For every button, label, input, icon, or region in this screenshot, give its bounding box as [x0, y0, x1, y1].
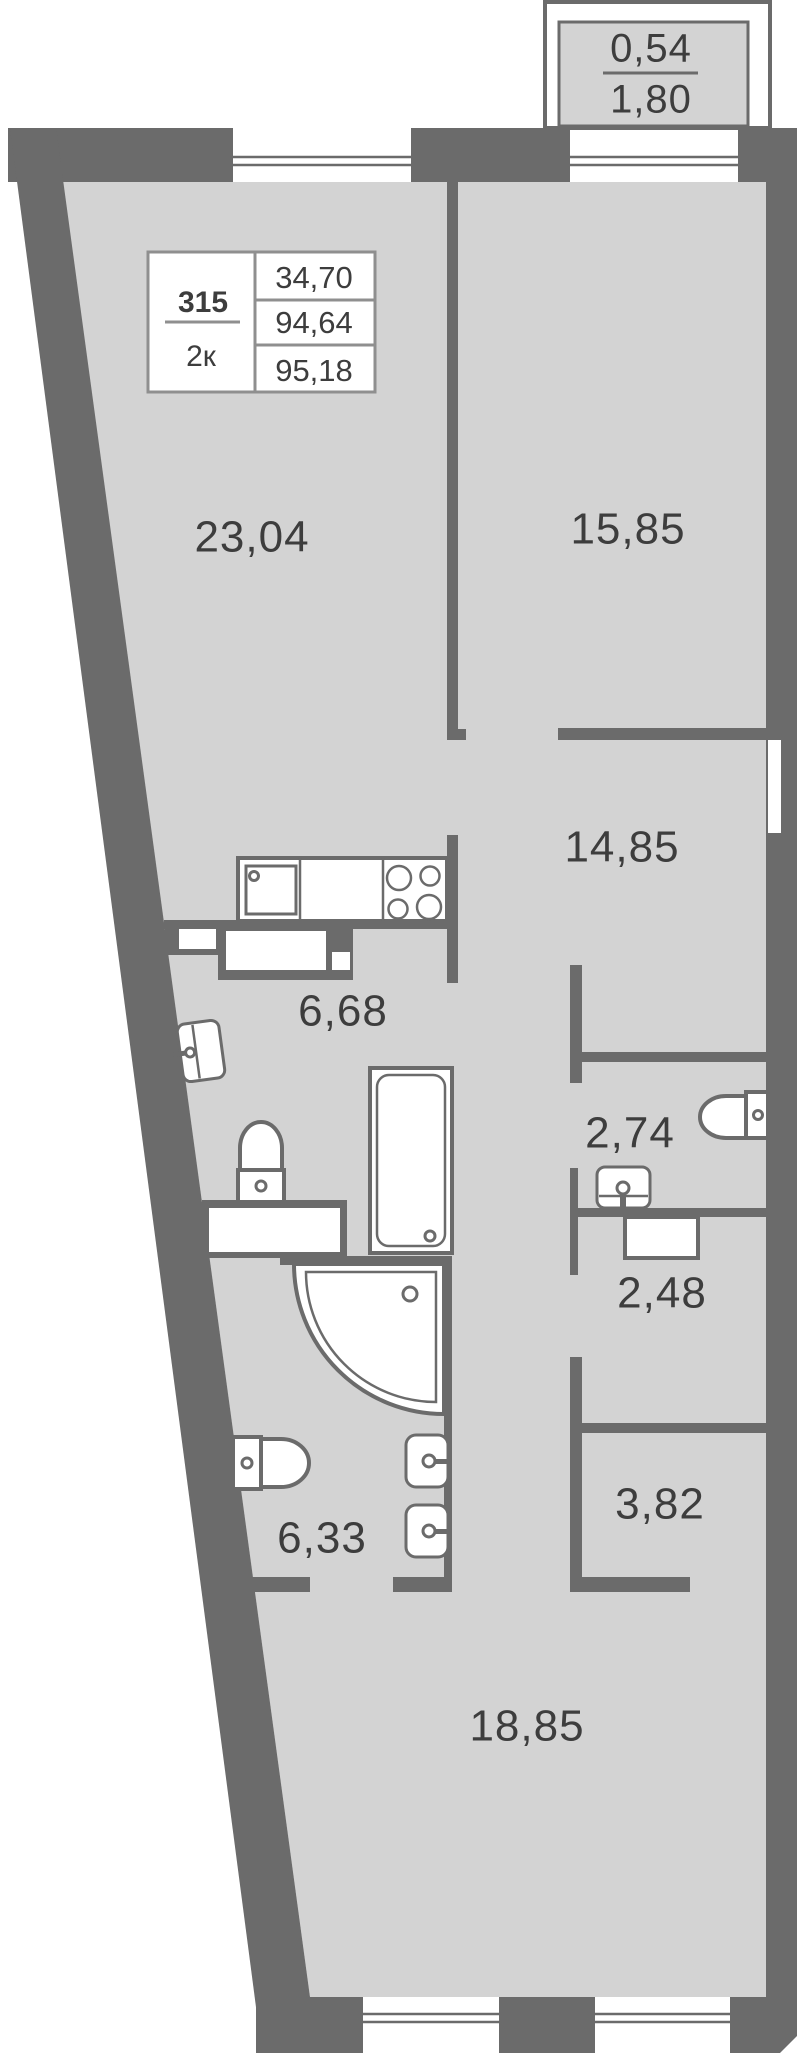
balcony: 0,54 1,80	[545, 2, 770, 128]
wall-corridor-right	[570, 1357, 582, 1592]
wall-foot	[447, 729, 466, 740]
right-wall	[766, 128, 797, 2053]
washbasin-icon-2	[406, 1505, 448, 1557]
balcony-area-lower: 1,80	[610, 78, 692, 122]
wall-wc-lower	[570, 1168, 578, 1275]
entrance-shaft	[768, 740, 781, 833]
washbasin-icon-1	[406, 1435, 448, 1487]
window-bottom-left	[363, 1997, 499, 2053]
wall-bathroom-bottom-right	[393, 1577, 452, 1592]
floor-plan-drawing: 0,54 1,80	[0, 0, 800, 2054]
unit-area-1: 34,70	[275, 260, 353, 295]
floor-plan-page: 0,54 1,80	[0, 0, 800, 2054]
room-label-kitchen: 6,68	[298, 987, 388, 1036]
room-label-bathroom: 6,33	[277, 1514, 367, 1563]
unit-type: 2к	[186, 340, 217, 373]
toilet-icon-1	[238, 1122, 284, 1202]
wall-hallway-wc	[577, 1052, 766, 1062]
wall-living-bedroom	[447, 182, 458, 738]
toilet-icon-2	[233, 1437, 309, 1489]
washing-machine-icon	[625, 1217, 698, 1258]
room-label-corridor: 18,85	[469, 1702, 584, 1751]
kitchen-sink-faucet-icon	[250, 872, 259, 881]
unit-area-3: 95,18	[275, 353, 353, 388]
room-label-bedroom: 15,85	[570, 505, 685, 554]
room-label-wc: 2,74	[585, 1109, 675, 1158]
unit-area-2: 94,64	[275, 305, 353, 340]
toilet-icon-3	[700, 1092, 768, 1138]
unit-number: 315	[178, 286, 228, 319]
room-label-wardrobe: 3,82	[615, 1480, 705, 1529]
unit-info-box: 315 2к 34,70 94,64 95,18	[148, 252, 375, 392]
room-label-living: 23,04	[194, 513, 309, 562]
window-balcony	[570, 128, 738, 182]
bathroom-counter	[202, 1200, 347, 1258]
room-label-hallway: 14,85	[564, 823, 679, 872]
wall-bathroom-bottom-left	[252, 1577, 310, 1592]
wall-wardrobe-bottom	[571, 1577, 690, 1592]
washbasin-icon-3	[597, 1167, 650, 1210]
window-bottom-right	[595, 1997, 730, 2053]
wall-wc-upper	[570, 965, 582, 1083]
wall-bedroom-hallway	[558, 728, 766, 740]
balcony-area-upper: 0,54	[610, 27, 692, 71]
bathtub-icon	[370, 1068, 452, 1253]
entrance-door-handle	[778, 886, 797, 890]
wall-bath2-wardrobe	[582, 1423, 766, 1433]
room-label-bathroom-small: 2,48	[617, 1269, 707, 1318]
window-top-left	[233, 128, 411, 182]
